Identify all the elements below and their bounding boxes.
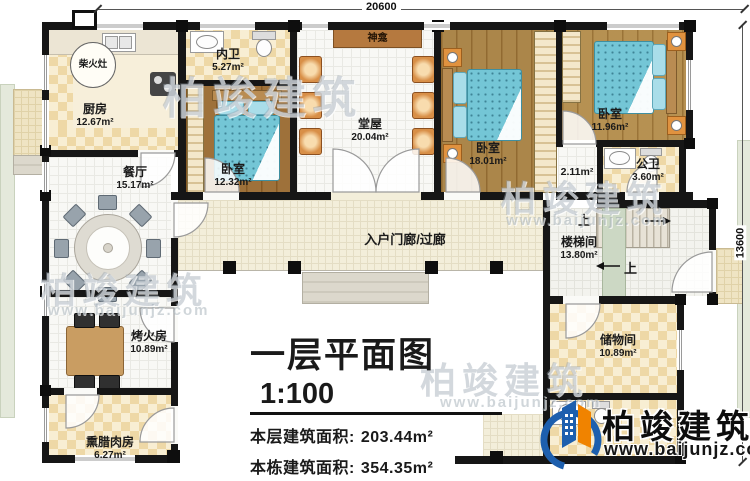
title-underline <box>250 412 502 415</box>
plan-title: 一层平面图 <box>250 327 435 378</box>
door-arc <box>376 149 419 192</box>
room-label-kitchen: 厨房12.67m² <box>55 103 135 128</box>
company-website: www.baijunjz.com <box>604 439 750 460</box>
stat-building-area: 本栋建筑面积:354.35m² <box>250 454 515 478</box>
room-label-kaohuo: 烤火房10.89m² <box>108 330 190 355</box>
watermark-url: www.baijunjz.com <box>506 212 667 229</box>
room-label-storage: 储物间10.89m² <box>578 334 658 359</box>
company-logo-icon <box>538 392 602 476</box>
stair-up-label: 上 <box>624 258 637 277</box>
room-label-stairwell: 楼梯间13.80m² <box>548 236 610 261</box>
title-block: 一层平面图 1:100 本层建筑面积:203.44m² 本栋建筑面积:354.3… <box>250 327 515 481</box>
dimension-line-top <box>97 9 745 10</box>
watermark-url: www.baijunjz.com <box>48 302 209 319</box>
room-label-dining: 餐厅15.17m² <box>95 166 175 191</box>
room-label-bedroom1: 卧室12.32m² <box>193 163 273 188</box>
room-label-bedroom3: 卧室11.96m² <box>570 108 650 133</box>
plan-scale: 1:100 <box>260 378 334 411</box>
title-row: 一层平面图 1:100 <box>250 327 515 411</box>
watermark-text: 柏竣建筑 <box>162 62 362 126</box>
company-logo: 柏竣建筑 www.baijunjz.com <box>538 392 750 480</box>
room-label-bedroom2: 卧室18.01m² <box>448 142 528 167</box>
door-arc <box>566 304 600 338</box>
dimension-right-value: 13600 <box>734 226 746 261</box>
stat-floor-area: 本层建筑面积:203.44m² <box>250 423 515 447</box>
door-arc <box>174 203 208 237</box>
floor-plan-canvas: 20600 13600 柴火灶 神龛 <box>0 0 750 481</box>
door-arc <box>333 149 376 192</box>
dimension-top-value: 20600 <box>362 1 401 13</box>
room-label-xunla: 熏腊肉房6.27m² <box>68 436 152 461</box>
room-label-porch: 入户门廊/过廊 <box>325 233 485 248</box>
door-arc <box>672 252 712 292</box>
door-arc <box>66 395 99 428</box>
